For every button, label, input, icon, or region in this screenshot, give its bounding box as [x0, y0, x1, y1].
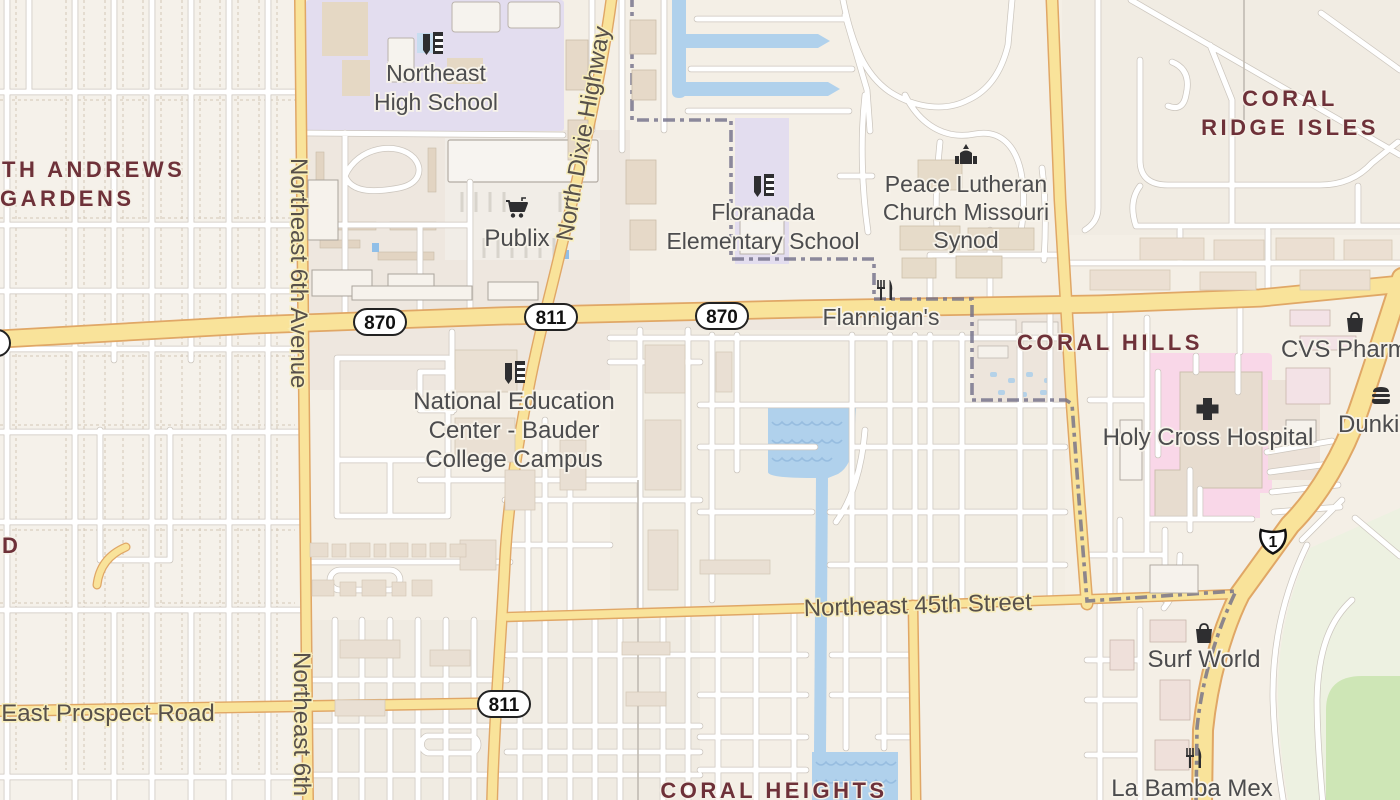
svg-text:Church Missouri: Church Missouri [883, 199, 1049, 225]
svg-text:811: 811 [489, 695, 520, 716]
svg-text:College Campus: College Campus [425, 446, 602, 473]
svg-text:1: 1 [1269, 534, 1278, 551]
svg-text:D: D [2, 533, 21, 558]
svg-text:Northeast 6th Avenue: Northeast 6th Avenue [285, 158, 312, 388]
svg-text:CORAL: CORAL [1242, 86, 1338, 111]
svg-text:Flannigan's: Flannigan's [823, 304, 940, 330]
svg-text:RIDGE ISLES: RIDGE ISLES [1201, 115, 1379, 140]
svg-text:Floranada: Floranada [711, 199, 815, 225]
svg-text:Surf World: Surf World [1148, 646, 1261, 673]
svg-text:Elementary School: Elementary School [666, 228, 859, 254]
svg-text:East Prospect Road: East Prospect Road [1, 700, 214, 727]
svg-text:811: 811 [536, 308, 567, 329]
svg-text:Peace Lutheran: Peace Lutheran [885, 171, 1047, 197]
svg-text:Dunkin: Dunkin [1338, 411, 1400, 438]
svg-text:National Education: National Education [413, 388, 614, 415]
svg-text:Synod: Synod [933, 227, 998, 253]
svg-text:CORAL HILLS: CORAL HILLS [1017, 330, 1203, 355]
svg-text:CORAL HEIGHTS: CORAL HEIGHTS [660, 778, 887, 800]
svg-text:High School: High School [374, 89, 498, 115]
svg-text:870: 870 [706, 307, 738, 328]
svg-text:Northeast 6th Avenue: Northeast 6th Avenue [288, 652, 315, 800]
svg-text:GARDENS: GARDENS [0, 186, 135, 211]
svg-text:Center - Bauder: Center - Bauder [429, 417, 600, 444]
svg-text:Holy Cross Hospital: Holy Cross Hospital [1103, 424, 1314, 451]
svg-text:TH ANDREWS: TH ANDREWS [2, 157, 185, 182]
svg-text:Publix: Publix [484, 225, 549, 252]
svg-text:CVS Pharmacy: CVS Pharmacy [1281, 336, 1400, 363]
svg-text:La Bamba Mex: La Bamba Mex [1111, 775, 1272, 800]
svg-text:Northeast: Northeast [386, 60, 486, 86]
svg-text:870: 870 [364, 313, 396, 334]
